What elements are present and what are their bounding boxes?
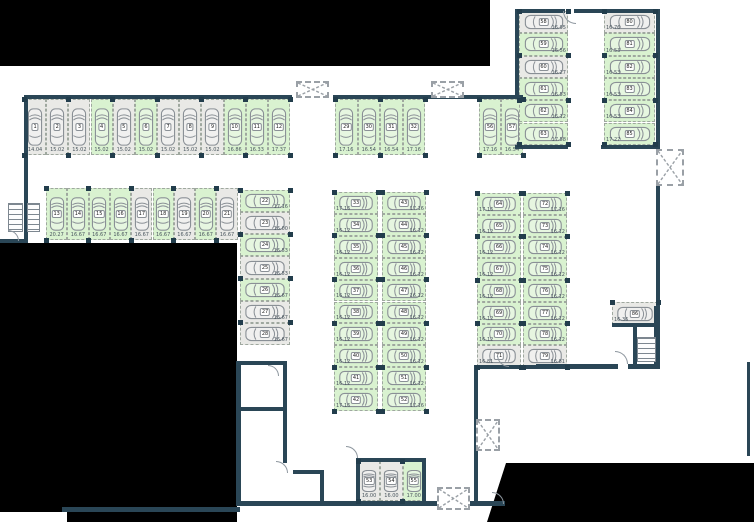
column-post [380, 190, 385, 195]
column-post [332, 409, 337, 414]
column-post [517, 142, 522, 147]
parking-space-54: 5416.00 [380, 461, 402, 501]
door-arc-icon [615, 351, 628, 364]
space-number: 17 [137, 210, 147, 218]
shaft-x-icon [298, 83, 327, 96]
space-number: 26 [260, 286, 270, 294]
space-dimension: 15.02 [180, 147, 200, 153]
column-post [602, 9, 607, 14]
space-number: 56 [485, 123, 495, 131]
shaft-box [476, 419, 500, 451]
parking-space-63[interactable]: 6317.58 [519, 123, 568, 145]
wall-segment [356, 458, 426, 462]
parking-space-42[interactable]: 4217.16 [334, 389, 378, 411]
parking-space-16[interactable]: 1616.67 [110, 188, 131, 240]
space-number: 47 [399, 287, 409, 295]
space-dimension: 16.12 [551, 316, 565, 322]
column-post [424, 233, 429, 238]
parking-space-17: 1716.67 [131, 188, 152, 240]
space-dimension: 16.12 [410, 359, 424, 365]
space-dimension: 16.67 [274, 293, 288, 299]
wall-segment [283, 361, 287, 411]
parking-space-85[interactable]: 8517.27 [604, 123, 655, 145]
parking-space-56[interactable]: 5617.16 [479, 99, 501, 155]
column-post [66, 153, 71, 158]
space-number: 8 [187, 123, 194, 131]
parking-space-50[interactable]: 5016.12 [382, 345, 426, 367]
space-dimension: 16.67 [68, 232, 87, 238]
space-dimension: 16.67 [274, 337, 288, 343]
parking-space-49[interactable]: 4916.12 [382, 323, 426, 345]
shaft-box [431, 81, 464, 98]
parking-space-46[interactable]: 4616.12 [382, 258, 426, 280]
space-number: 75 [540, 265, 550, 273]
column-post [566, 98, 571, 103]
wall-segment [656, 186, 660, 308]
column-post [199, 97, 204, 102]
space-dimension: 16.12 [551, 272, 565, 278]
space-dimension: 16.12 [551, 250, 565, 256]
column-post [565, 365, 570, 370]
space-number: 66 [494, 243, 504, 251]
space-dimension: 16.53 [274, 248, 288, 254]
parking-space-21: 2116.67 [216, 188, 237, 240]
column-post [653, 98, 658, 103]
wall-segment [601, 145, 660, 149]
parking-space-5: 515.02 [113, 99, 135, 155]
space-dimension: 16.12 [410, 228, 424, 234]
column-post [333, 97, 338, 102]
wall-segment [62, 507, 240, 512]
shaft-x-icon [433, 83, 462, 96]
parking-space-6[interactable]: 615.02 [135, 99, 157, 155]
column-post [566, 9, 571, 14]
parking-space-74[interactable]: 7416.12 [523, 237, 567, 259]
column-post [171, 186, 176, 191]
wall-segment [237, 407, 287, 411]
space-dimension: 17.00 [404, 493, 424, 499]
space-number: 59 [538, 40, 548, 48]
space-dimension: 16.12 [479, 316, 493, 322]
parking-space-10[interactable]: 1016.86 [224, 99, 246, 155]
space-dimension: 17.16 [274, 204, 288, 210]
column-post [521, 153, 526, 158]
column-post [110, 97, 115, 102]
space-number: 73 [540, 222, 550, 230]
wall-segment [515, 9, 565, 13]
space-dimension: 17.16 [336, 403, 350, 409]
parking-space-36[interactable]: 3616.12 [334, 258, 378, 280]
parking-space-35[interactable]: 3516.12 [334, 236, 378, 258]
column-post [565, 191, 570, 196]
wall-segment [515, 145, 568, 149]
space-number: 68 [494, 287, 504, 295]
parking-space-67[interactable]: 6716.12 [477, 258, 521, 280]
space-number: 81 [624, 40, 634, 48]
space-dimension: 15.02 [158, 147, 178, 153]
parking-space-73[interactable]: 7316.12 [523, 215, 567, 237]
column-post [517, 9, 522, 14]
column-post [288, 188, 293, 193]
parking-space-40[interactable]: 4016.12 [334, 345, 378, 367]
column-post [424, 409, 429, 414]
space-number: 23 [260, 219, 270, 227]
space-number: 51 [399, 374, 409, 382]
column-post [22, 153, 27, 158]
space-number: 82 [624, 63, 634, 71]
space-number: 13 [51, 210, 61, 218]
space-number: 30 [364, 123, 374, 131]
parking-space-48[interactable]: 4816.12 [382, 302, 426, 324]
parking-space-14[interactable]: 1416.67 [67, 188, 88, 240]
parking-space-15[interactable]: 1516.67 [89, 188, 110, 240]
space-number: 34 [351, 221, 361, 229]
space-dimension: 16.53 [552, 92, 566, 98]
space-number: 49 [399, 330, 409, 338]
space-number: 62 [538, 107, 548, 115]
parking-space-45[interactable]: 4516.12 [382, 236, 426, 258]
column-post [356, 499, 361, 504]
space-dimension: 16.53 [606, 92, 620, 98]
wall-segment [237, 361, 287, 365]
space-dimension: 16.12 [410, 381, 424, 387]
space-number: 67 [494, 265, 504, 273]
space-dimension: 16.12 [551, 337, 565, 343]
column-post [521, 278, 526, 283]
column-post [400, 459, 405, 464]
space-dimension: 15.02 [136, 147, 156, 153]
column-post [602, 142, 607, 147]
space-dimension: 16.12 [479, 294, 493, 300]
space-number: 76 [540, 287, 550, 295]
space-number: 77 [540, 309, 550, 317]
wall-segment [422, 458, 426, 505]
parking-space-8: 815.02 [179, 99, 201, 155]
column-post [653, 9, 658, 14]
space-number: 29 [341, 123, 351, 131]
parking-space-11[interactable]: 1116.33 [246, 99, 268, 155]
space-number: 11 [252, 123, 262, 131]
space-number: 57 [507, 123, 517, 131]
parking-space-19: 1916.67 [174, 188, 195, 240]
space-dimension: 16.12 [336, 315, 350, 321]
wall-segment [747, 362, 750, 456]
stairs-icon [27, 203, 40, 232]
space-number: 18 [158, 210, 168, 218]
space-number: 54 [386, 477, 396, 485]
wall-segment [283, 411, 287, 463]
stairs-icon [637, 337, 656, 362]
space-number: 2 [54, 123, 61, 131]
parking-space-84[interactable]: 8416.53 [604, 100, 655, 122]
column-post [380, 233, 385, 238]
space-dimension: 15.02 [92, 147, 112, 153]
shaft-box [437, 487, 470, 510]
column-post [44, 238, 49, 243]
parking-space-61[interactable]: 6116.53 [519, 78, 568, 100]
column-post [424, 365, 429, 370]
column-post [110, 153, 115, 158]
column-post [288, 153, 293, 158]
space-number: 72 [540, 200, 550, 208]
space-number: 21 [222, 210, 232, 218]
parking-floor-plan: 114.04215.02315.02415.02515.02615.02715.… [0, 0, 754, 522]
parking-space-44[interactable]: 4416.12 [382, 214, 426, 236]
parking-space-78[interactable]: 7816.12 [523, 324, 567, 346]
space-number: 48 [399, 308, 409, 316]
parking-space-12[interactable]: 1217.37 [268, 99, 290, 155]
space-number: 41 [351, 374, 361, 382]
parking-space-25: 2516.53 [240, 256, 290, 278]
parking-space-29[interactable]: 2917.16 [335, 99, 358, 155]
wall-segment [656, 9, 660, 149]
space-dimension: 16.67 [196, 232, 215, 238]
stairs-icon [8, 203, 23, 232]
space-dimension: 16.53 [606, 70, 620, 76]
wall-segment [333, 95, 523, 99]
shaft-x-icon [658, 151, 682, 184]
space-dimension: 16.12 [410, 272, 424, 278]
parking-space-53: 5316.00 [358, 461, 380, 501]
space-dimension: 15.02 [69, 147, 89, 153]
parking-space-69[interactable]: 6916.12 [477, 302, 521, 324]
space-dimension: 16.12 [479, 337, 493, 343]
column-post [155, 97, 160, 102]
column-post [238, 188, 243, 193]
space-dimension: 16.12 [552, 114, 566, 120]
space-dimension: 16.86 [225, 147, 245, 153]
space-number: 32 [409, 123, 419, 131]
space-dimension: 16.56 [552, 48, 566, 54]
space-number: 40 [351, 352, 361, 360]
parking-space-38[interactable]: 3816.12 [334, 302, 378, 324]
space-dimension: 16.12 [479, 229, 493, 235]
space-number: 1 [31, 123, 38, 131]
parking-space-65[interactable]: 6516.12 [477, 215, 521, 237]
column-post [566, 53, 571, 58]
column-post [565, 278, 570, 283]
parking-space-4[interactable]: 415.02 [91, 99, 113, 155]
column-post [288, 320, 293, 325]
parking-space-83[interactable]: 8316.53 [604, 78, 655, 100]
parking-space-39[interactable]: 3916.12 [334, 323, 378, 345]
space-number: 74 [540, 243, 550, 251]
column-post [565, 234, 570, 239]
space-dimension: 15.02 [114, 147, 134, 153]
space-dimension: 15.02 [202, 147, 222, 153]
column-post [565, 321, 570, 326]
column-post [332, 233, 337, 238]
space-dimension: 16.54 [381, 147, 402, 153]
space-number: 78 [540, 330, 550, 338]
column-post [199, 153, 204, 158]
space-dimension: 16.00 [381, 493, 401, 499]
space-number: 46 [399, 265, 409, 273]
parking-space-66[interactable]: 6616.12 [477, 237, 521, 259]
column-post [44, 186, 49, 191]
space-dimension: 16.12 [336, 272, 350, 278]
space-number: 28 [260, 330, 270, 338]
space-dimension: 16.27 [552, 70, 566, 76]
column-post [66, 97, 71, 102]
space-dimension: 16.53 [606, 114, 620, 120]
column-post [332, 277, 337, 282]
parking-space-81[interactable]: 8116.53 [604, 33, 655, 55]
space-dimension: 16.12 [336, 359, 350, 365]
space-dimension: 16.54 [359, 147, 380, 153]
space-number: 58 [538, 18, 548, 26]
parking-space-70[interactable]: 7016.12 [477, 324, 521, 346]
space-number: 86 [630, 310, 640, 318]
parking-space-24[interactable]: 2416.53 [240, 234, 290, 256]
column-post [86, 238, 91, 243]
parking-space-30[interactable]: 3016.54 [358, 99, 381, 155]
space-number: 33 [351, 199, 361, 207]
column-post [238, 232, 243, 237]
parking-space-22[interactable]: 2217.16 [240, 190, 290, 212]
space-number: 69 [494, 309, 504, 317]
space-dimension: 16.67 [274, 315, 288, 321]
space-dimension: 16.12 [551, 294, 565, 300]
space-dimension: 16.12 [410, 293, 424, 299]
column-post [288, 232, 293, 237]
column-post [475, 191, 480, 196]
space-dimension: 16.12 [336, 381, 350, 387]
parking-space-13[interactable]: 1320.27 [46, 188, 67, 240]
parking-space-31[interactable]: 3116.54 [380, 99, 403, 155]
parking-space-34[interactable]: 3416.12 [334, 214, 378, 236]
space-number: 9 [209, 123, 216, 131]
wall-segment [320, 470, 324, 504]
space-number: 50 [399, 352, 409, 360]
column-post [521, 365, 526, 370]
column-post [477, 97, 482, 102]
parking-space-20[interactable]: 2016.67 [195, 188, 216, 240]
parking-space-52[interactable]: 5217.16 [382, 389, 426, 411]
parking-space-86: 8616.36 [612, 302, 658, 325]
space-dimension: 16.95 [552, 25, 566, 31]
shaft-x-icon [439, 489, 468, 508]
column-post [129, 186, 134, 191]
column-post [214, 238, 219, 243]
space-dimension: 16.12 [336, 293, 350, 299]
space-number: 16 [115, 210, 125, 218]
column-post [22, 97, 27, 102]
column-post [380, 321, 385, 326]
column-post [566, 142, 571, 147]
column-post [243, 97, 248, 102]
column-post [602, 53, 607, 58]
space-dimension: 16.33 [247, 147, 267, 153]
space-number: 79 [540, 352, 550, 360]
parking-space-33[interactable]: 3317.16 [334, 192, 378, 214]
column-post [356, 459, 361, 464]
parking-space-51[interactable]: 5116.12 [382, 367, 426, 389]
column-post [517, 53, 522, 58]
space-number: 83 [624, 85, 634, 93]
column-post [378, 153, 383, 158]
space-number: 53 [364, 477, 374, 485]
column-post [424, 321, 429, 326]
space-number: 31 [386, 123, 396, 131]
space-dimension: 17.16 [404, 147, 425, 153]
space-number: 37 [351, 287, 361, 295]
space-dimension: 17.16 [336, 206, 350, 212]
space-number: 60 [538, 63, 548, 71]
space-number: 22 [260, 197, 270, 205]
space-dimension: 16.67 [154, 232, 173, 238]
space-dimension: 16.67 [111, 232, 130, 238]
parking-space-9: 915.02 [201, 99, 223, 155]
space-dimension: 16.12 [479, 250, 493, 256]
space-number: 84 [624, 107, 634, 115]
parking-space-43[interactable]: 4317.16 [382, 192, 426, 214]
parking-space-26[interactable]: 2616.67 [240, 279, 290, 301]
space-dimension: 16.67 [217, 232, 236, 238]
column-post [423, 97, 428, 102]
space-dimension: 16.12 [336, 250, 350, 256]
column-post [288, 97, 293, 102]
space-number: 27 [260, 308, 270, 316]
parking-space-47[interactable]: 4716.12 [382, 280, 426, 302]
space-number: 3 [76, 123, 83, 131]
column-post [333, 153, 338, 158]
parking-space-23: 2316.00 [240, 212, 290, 234]
space-dimension: 16.00 [274, 226, 288, 232]
space-dimension: 17.27 [606, 137, 620, 143]
column-post [424, 277, 429, 282]
space-dimension: 16.12 [410, 250, 424, 256]
space-dimension: 17.16 [410, 206, 424, 212]
column-post [653, 53, 658, 58]
parking-space-41[interactable]: 4116.12 [334, 367, 378, 389]
parking-space-72[interactable]: 7217.16 [523, 193, 567, 215]
column-post [171, 238, 176, 243]
column-post [610, 300, 615, 305]
column-post [380, 409, 385, 414]
space-number: 5 [120, 123, 127, 131]
parking-space-68[interactable]: 6816.12 [477, 280, 521, 302]
space-dimension: 16.12 [551, 229, 565, 235]
parking-space-18[interactable]: 1816.67 [153, 188, 174, 240]
column-post [332, 190, 337, 195]
parking-space-82[interactable]: 8216.53 [604, 56, 655, 78]
space-number: 43 [399, 199, 409, 207]
parking-space-75[interactable]: 7516.12 [523, 258, 567, 280]
column-post [400, 499, 405, 504]
space-dimension: 16.12 [336, 228, 350, 234]
column-post [521, 191, 526, 196]
parking-space-64[interactable]: 6417.16 [477, 193, 521, 215]
parking-space-62[interactable]: 6216.12 [519, 100, 568, 122]
space-dimension: 17.16 [336, 147, 357, 153]
column-post [380, 365, 385, 370]
parking-space-59[interactable]: 5916.56 [519, 33, 568, 55]
column-post [380, 277, 385, 282]
column-post [653, 142, 658, 147]
parking-space-32[interactable]: 3217.16 [403, 99, 426, 155]
parking-space-77[interactable]: 7716.12 [523, 302, 567, 324]
column-post [238, 276, 243, 281]
column-post [238, 320, 243, 325]
parking-space-58: 5816.95 [519, 11, 568, 33]
space-number: 80 [624, 18, 634, 26]
column-post [332, 365, 337, 370]
parking-space-27: 2716.67 [240, 301, 290, 323]
space-dimension: 16.76 [606, 25, 620, 31]
parking-space-76[interactable]: 7616.12 [523, 280, 567, 302]
parking-space-37[interactable]: 3716.12 [334, 280, 378, 302]
